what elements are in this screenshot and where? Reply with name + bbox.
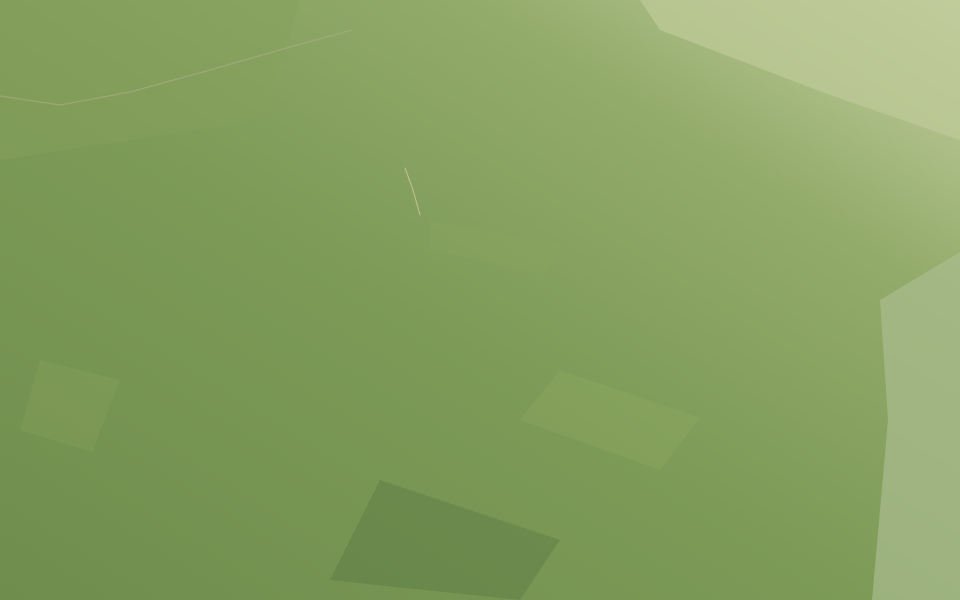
aerial-render-viewport	[0, 0, 960, 600]
aerial-scene	[0, 0, 960, 600]
fields-layer	[0, 0, 960, 600]
